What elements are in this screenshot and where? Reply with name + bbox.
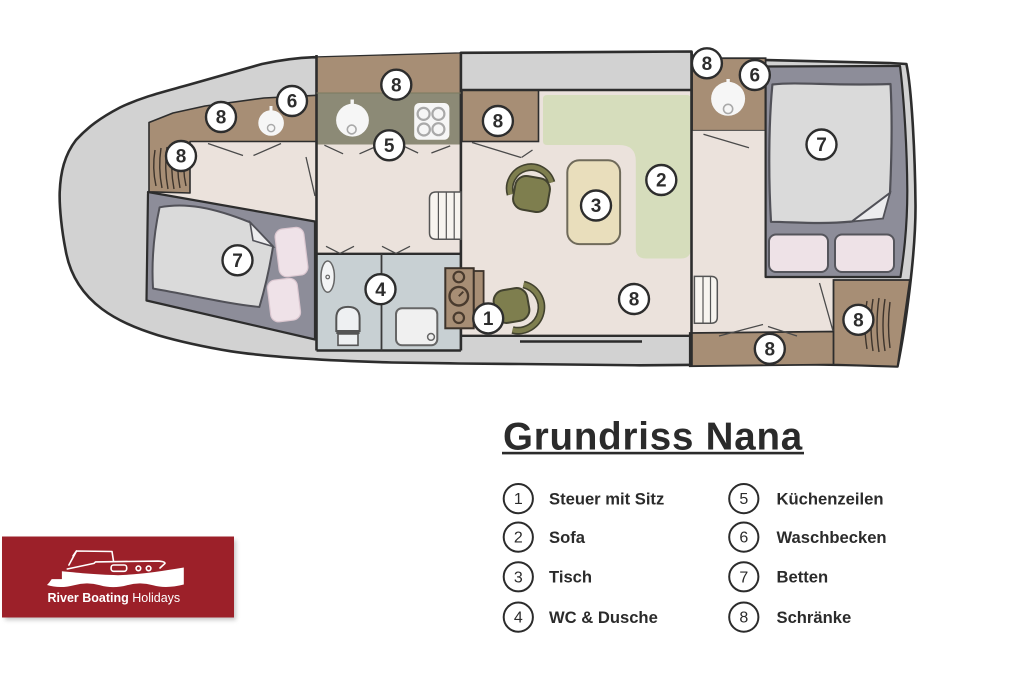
svg-text:8: 8 — [739, 610, 748, 627]
svg-text:8: 8 — [216, 108, 227, 129]
svg-text:6: 6 — [287, 92, 298, 113]
svg-text:2: 2 — [514, 530, 523, 547]
svg-text:3: 3 — [591, 196, 602, 217]
svg-text:1: 1 — [483, 309, 494, 330]
svg-text:8: 8 — [391, 75, 402, 96]
svg-text:Betten: Betten — [777, 568, 829, 587]
svg-text:8: 8 — [629, 290, 640, 311]
svg-text:5: 5 — [739, 491, 748, 508]
svg-text:3: 3 — [514, 569, 523, 586]
svg-text:Sofa: Sofa — [549, 528, 586, 547]
svg-text:6: 6 — [750, 66, 761, 87]
svg-text:WC & Dusche: WC & Dusche — [549, 608, 658, 627]
svg-text:8: 8 — [176, 147, 187, 168]
svg-text:2: 2 — [656, 171, 667, 192]
svg-text:Tisch: Tisch — [549, 568, 592, 587]
svg-text:Schränke: Schränke — [777, 608, 852, 627]
svg-text:7: 7 — [816, 135, 827, 156]
svg-text:8: 8 — [765, 340, 776, 361]
svg-text:5: 5 — [384, 136, 395, 157]
svg-text:8: 8 — [493, 112, 504, 133]
svg-text:4: 4 — [375, 280, 386, 301]
svg-text:7: 7 — [739, 569, 748, 586]
svg-text:Waschbecken: Waschbecken — [777, 528, 887, 547]
svg-text:8: 8 — [853, 311, 864, 332]
svg-text:River Boating Holidays: River Boating Holidays — [48, 591, 181, 605]
svg-text:4: 4 — [514, 610, 523, 627]
svg-text:6: 6 — [739, 530, 748, 547]
svg-text:Steuer mit Sitz: Steuer mit Sitz — [549, 490, 664, 509]
svg-text:1: 1 — [514, 491, 523, 508]
svg-text:7: 7 — [232, 251, 243, 272]
svg-text:8: 8 — [702, 54, 713, 75]
svg-text:Küchenzeilen: Küchenzeilen — [777, 490, 884, 509]
